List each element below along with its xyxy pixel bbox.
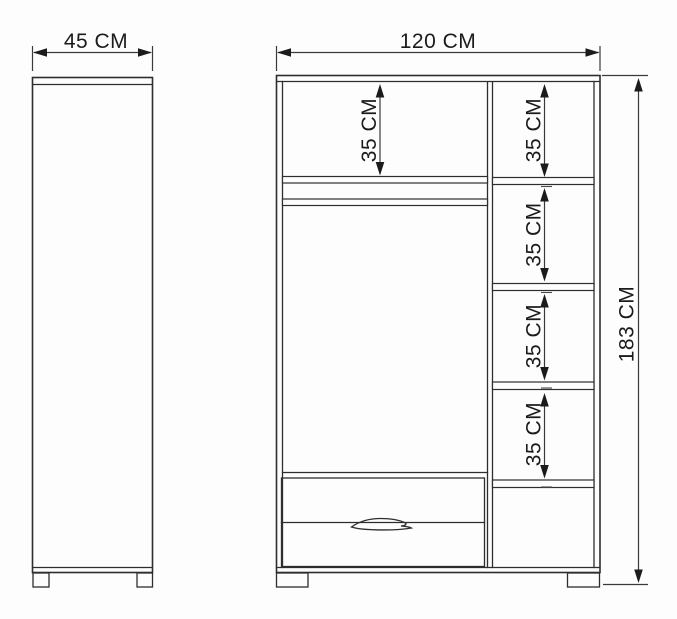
front-foot-right	[568, 573, 600, 587]
arrow-right-icon	[138, 48, 152, 57]
wardrobe-dimension-diagram: 45 CM	[0, 0, 677, 619]
compartment-height-label: 35 CM	[358, 98, 381, 162]
left-section-shelf	[283, 177, 488, 184]
compartment-height-label: 35 CM	[523, 202, 546, 266]
right-column-shelf-2	[493, 284, 595, 291]
arrow-down-icon	[540, 268, 549, 282]
dim-right-compartment-3: 35 CM	[523, 294, 553, 388]
diagram-canvas: 45 CM	[0, 0, 677, 619]
drawer-unit	[282, 478, 485, 567]
arrow-down-icon	[634, 570, 643, 584]
compartment-height-label: 35 CM	[523, 304, 546, 368]
front-view: 120 CM 35 CM 35 CM 35 CM	[277, 30, 649, 587]
left-section-rail	[283, 199, 488, 206]
side-view: 45 CM	[33, 30, 153, 587]
compartment-height-label: 35 CM	[523, 98, 546, 162]
front-view-outline	[277, 76, 601, 573]
side-view-foot-right	[137, 573, 153, 587]
dim-side-width: 45 CM	[33, 30, 153, 71]
arrow-up-icon	[540, 188, 549, 202]
arrow-left-icon	[33, 48, 47, 57]
dim-right-compartment-1: 35 CM	[523, 84, 553, 187]
drawer-handle-icon	[352, 519, 412, 530]
arrow-right-icon	[586, 48, 600, 57]
right-column-shelf-4	[493, 480, 595, 488]
dim-front-height: 183 CM	[602, 76, 648, 585]
dim-front-width: 120 CM	[277, 30, 601, 71]
dim-right-compartment-4: 35 CM	[523, 393, 553, 487]
compartment-height-label: 35 CM	[523, 402, 546, 466]
arrow-left-icon	[277, 48, 291, 57]
arrow-up-icon	[376, 84, 385, 98]
dim-right-compartment-2: 35 CM	[523, 188, 553, 293]
right-column-shelf-1	[493, 178, 595, 185]
arrow-down-icon	[540, 164, 549, 178]
side-width-label: 45 CM	[64, 30, 128, 53]
dim-left-top-compartment: 35 CM	[358, 84, 384, 176]
front-height-label: 183 CM	[616, 286, 639, 363]
arrow-up-icon	[540, 84, 549, 98]
side-view-outline	[33, 78, 153, 573]
side-view-foot-left	[33, 573, 49, 587]
front-foot-left	[277, 573, 309, 587]
arrow-down-icon	[376, 162, 385, 176]
front-width-label: 120 CM	[400, 30, 477, 53]
arrow-up-icon	[634, 78, 643, 92]
